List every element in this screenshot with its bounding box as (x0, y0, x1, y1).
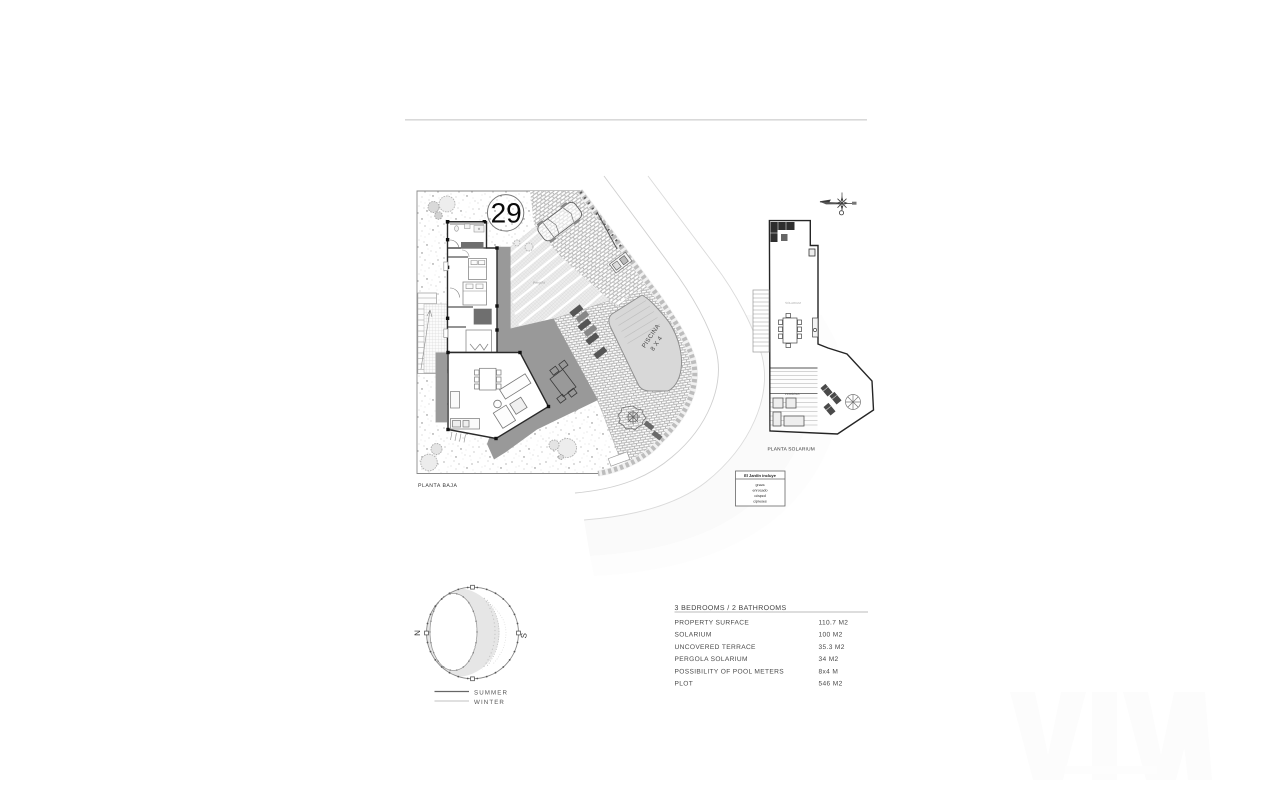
svg-text:El Jardín incluye: El Jardín incluye (744, 473, 777, 478)
svg-text:PROPERTY SURFACE: PROPERTY SURFACE (675, 620, 750, 627)
svg-text:PLOT: PLOT (675, 681, 694, 688)
svg-text:546 M2: 546 M2 (819, 681, 843, 688)
svg-text:POSSIBILITY OF POOL METERS: POSSIBILITY OF POOL METERS (675, 668, 785, 675)
svg-text:PLANTA BAJA: PLANTA BAJA (418, 483, 457, 489)
svg-text:8x4 M: 8x4 M (819, 668, 839, 675)
svg-text:N: N (413, 630, 422, 636)
svg-text:29: 29 (491, 198, 522, 229)
svg-text:SOLARIUM: SOLARIUM (785, 301, 801, 305)
svg-text:Pérgola: Pérgola (533, 280, 545, 285)
svg-text:césped: césped (754, 494, 766, 498)
svg-text:cipreses: cipreses (753, 500, 767, 504)
svg-text:34 M2: 34 M2 (819, 656, 839, 663)
svg-text:3 BEDROOMS / 2 BATHROOMS: 3 BEDROOMS / 2 BATHROOMS (675, 604, 787, 612)
svg-text:SUMMER: SUMMER (474, 690, 508, 697)
svg-text:UNCOVERED TERRACE: UNCOVERED TERRACE (675, 644, 757, 651)
svg-text:PLANTA SOLARIUM: PLANTA SOLARIUM (768, 447, 815, 453)
svg-text:WINTER: WINTER (474, 699, 505, 706)
svg-text:grava: grava (756, 483, 765, 487)
svg-text:110.7 M2: 110.7 M2 (819, 620, 849, 627)
svg-text:enrocado: enrocado (753, 489, 768, 493)
svg-text:PERGOLA: PERGOLA (785, 392, 800, 396)
svg-text:SOLARIUM: SOLARIUM (675, 632, 712, 639)
svg-text:35.3 M2: 35.3 M2 (819, 644, 845, 651)
svg-text:S: S (519, 632, 529, 638)
svg-text:100 M2: 100 M2 (819, 632, 843, 639)
svg-text:PERGOLA SOLARIUM: PERGOLA SOLARIUM (675, 656, 748, 663)
